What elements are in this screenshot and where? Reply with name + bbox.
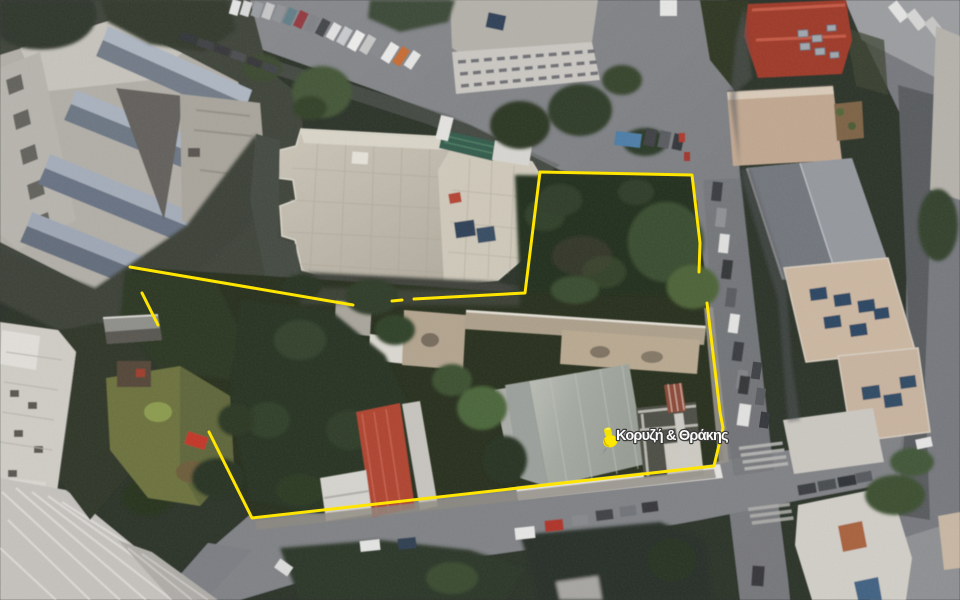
svg-text:Κορυζή & Θράκης: Κορυζή & Θράκης: [616, 428, 728, 444]
